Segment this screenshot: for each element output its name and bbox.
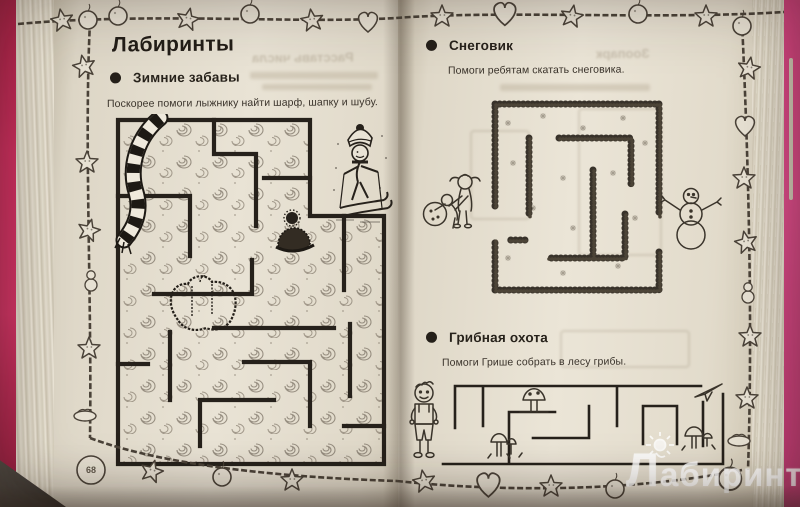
- garland-rope-top: [18, 12, 784, 24]
- snowman-ornament: [742, 283, 754, 303]
- heart-ornament: [359, 12, 378, 32]
- star-ornament: [431, 5, 453, 26]
- star-ornament: [733, 167, 755, 188]
- star-ornament: [733, 229, 759, 254]
- star-ornament: [175, 6, 201, 31]
- labirint-jester-icon: [642, 431, 678, 465]
- nest-ornament: [728, 434, 750, 446]
- ball-ornament: [79, 4, 97, 29]
- heart-ornament: [736, 116, 755, 136]
- star-ornament: [695, 5, 717, 26]
- ball-ornament: [213, 461, 231, 486]
- ball-ornament: [241, 0, 259, 23]
- ball-ornament: [109, 0, 127, 25]
- snowman-ornament: [85, 271, 97, 291]
- garland-rope-bottom-left: [90, 438, 397, 481]
- heart-ornament: [494, 3, 516, 26]
- garland-border: 68: [0, 0, 800, 507]
- page-number: 68: [86, 465, 96, 475]
- star-ornament: [71, 53, 97, 78]
- star-ornament: [736, 55, 761, 80]
- book-photo: Расставь числа Зоопарк Лабиринты Зимние …: [0, 0, 800, 507]
- bottom-shadow: [0, 486, 800, 507]
- page-number-ball: 68: [77, 456, 105, 484]
- star-ornament: [139, 458, 166, 484]
- star-ornament: [736, 387, 758, 408]
- nest-ornament: [74, 409, 96, 421]
- ball-ornament: [629, 0, 647, 23]
